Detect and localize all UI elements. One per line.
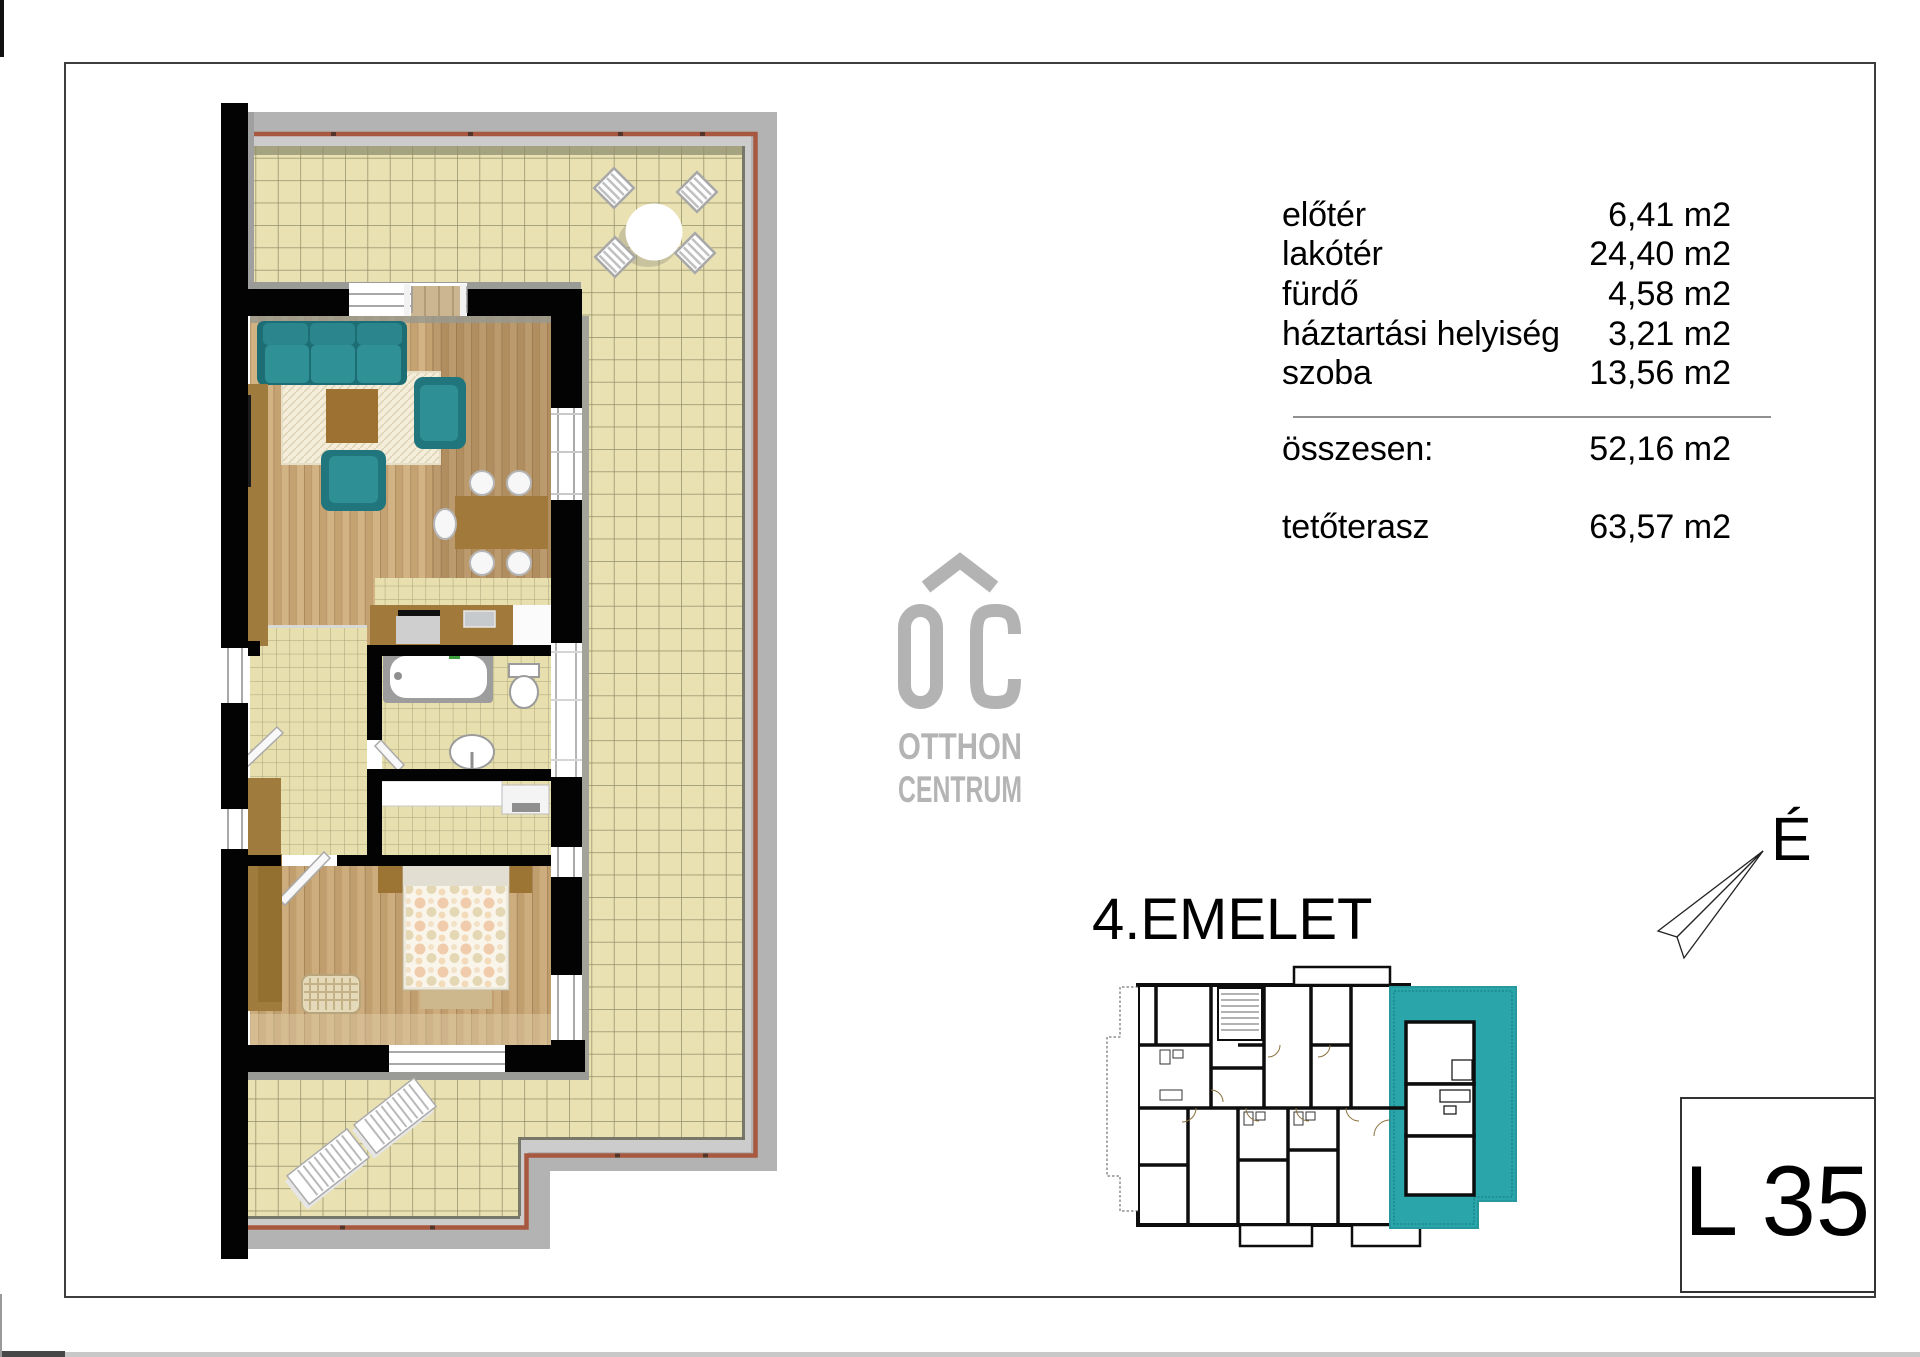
svg-text:13,56 m2: 13,56 m2 [1589,354,1731,392]
svg-text:4,58 m2: 4,58 m2 [1608,275,1731,313]
svg-text:összesen:: összesen: [1282,430,1433,468]
svg-text:24,40 m2: 24,40 m2 [1589,235,1731,273]
svg-text:6,41 m2: 6,41 m2 [1608,196,1731,234]
svg-text:tetőterasz: tetőterasz [1282,508,1429,546]
svg-text:4.EMELET: 4.EMELET [1092,887,1372,952]
svg-text:fürdő: fürdő [1282,275,1359,313]
svg-text:háztartási helyiség: háztartási helyiség [1282,315,1560,353]
svg-text:CENTRUM: CENTRUM [898,769,1022,810]
svg-text:3,21 m2: 3,21 m2 [1608,315,1731,353]
svg-text:52,16 m2: 52,16 m2 [1589,430,1731,468]
svg-text:lakótér: lakótér [1282,235,1383,273]
svg-text:előtér: előtér [1282,196,1366,234]
svg-text:OTTHON: OTTHON [898,726,1022,767]
svg-text:É: É [1771,805,1812,873]
svg-text:L 35: L 35 [1684,1145,1870,1256]
svg-text:szoba: szoba [1282,354,1372,392]
svg-text:63,57 m2: 63,57 m2 [1589,508,1731,546]
